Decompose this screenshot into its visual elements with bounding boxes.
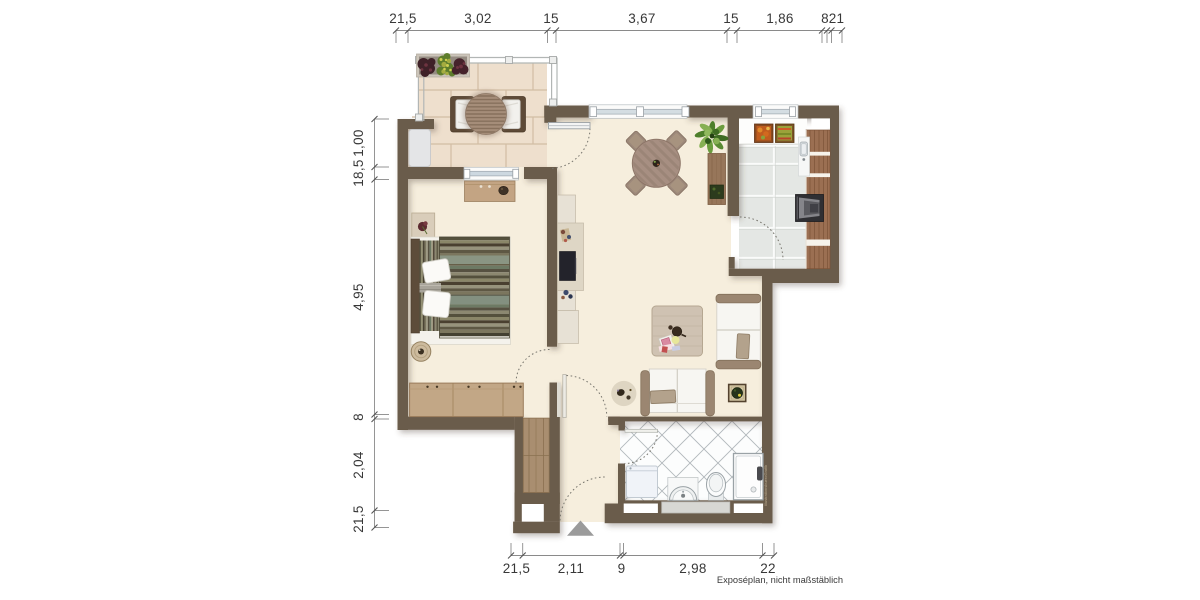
svg-text:2,98: 2,98: [679, 561, 706, 576]
svg-text:22: 22: [760, 561, 776, 576]
svg-text:18,5: 18,5: [351, 159, 366, 186]
svg-text:3,02: 3,02: [464, 11, 491, 26]
svg-text:21,5: 21,5: [389, 11, 416, 26]
svg-text:21: 21: [829, 11, 845, 26]
svg-text:2,11: 2,11: [558, 561, 584, 576]
svg-text:21,5: 21,5: [351, 505, 366, 532]
svg-text:21,5: 21,5: [503, 561, 530, 576]
svg-text:2,04: 2,04: [351, 451, 366, 479]
svg-text:4,95: 4,95: [351, 283, 366, 310]
svg-text:1,86: 1,86: [766, 11, 793, 26]
svg-text:Exposéplan, nicht maßstäblich: Exposéplan, nicht maßstäblich: [717, 575, 843, 585]
svg-text:15: 15: [723, 11, 739, 26]
svg-text:IllustrationsbueroGrafik: IllustrationsbueroGrafik: [763, 465, 768, 506]
svg-text:1,00: 1,00: [351, 129, 366, 156]
svg-text:15: 15: [543, 11, 559, 26]
svg-text:3,67: 3,67: [628, 11, 655, 26]
svg-text:8: 8: [351, 413, 366, 421]
svg-text:9: 9: [618, 561, 626, 576]
